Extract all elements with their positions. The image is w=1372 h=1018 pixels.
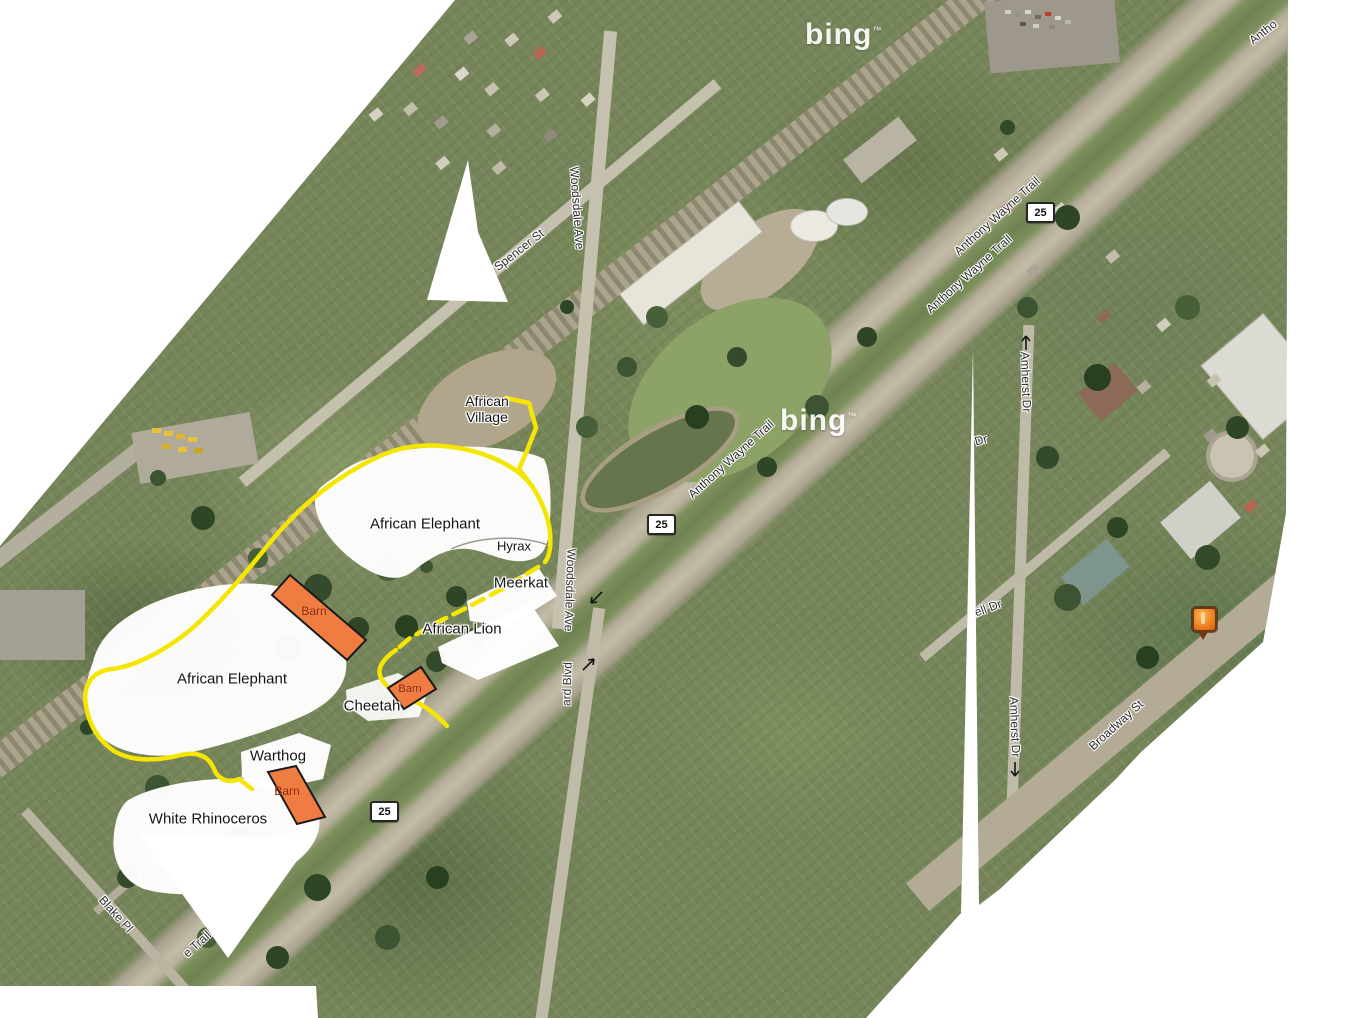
arrow-sw-icon [591, 592, 602, 603]
label-african-village: African Village [465, 393, 509, 425]
bing-watermark-top[interactable]: bing™ [805, 18, 882, 52]
pushpin-tail-icon [1197, 630, 1209, 640]
label-amherst-dr-north: Amherst Dr [1018, 351, 1034, 412]
label-woodsdale-ave-south: Woodsdale Ave [562, 548, 579, 631]
label-cheetah: Cheetah [344, 698, 401, 715]
label-warthog: Warthog [250, 748, 306, 765]
label-meerkat: Meerkat [494, 575, 548, 592]
label-white-rhinoceros: White Rhinoceros [149, 811, 267, 828]
route-number: 25 [655, 519, 667, 531]
arrow-n-icon [1022, 336, 1030, 350]
bing-watermark-middle[interactable]: bing™ [780, 404, 857, 438]
label-amherst-dr-south: Amherst Dr [1007, 696, 1023, 757]
bing-logo-text: bing [780, 404, 847, 437]
label-african-lion: African Lion [422, 621, 501, 638]
map-pushpin-marker[interactable] [1192, 607, 1214, 641]
arrow-ne-icon [583, 659, 594, 670]
label-hyrax: Hyrax [497, 539, 531, 554]
arrow-s-icon [1011, 762, 1019, 776]
trademark-symbol: ™ [847, 411, 857, 421]
label-barn-2: Barn [398, 683, 421, 695]
route-number: 25 [378, 806, 390, 818]
label-ard-blvd-partial: ard Blvd [559, 662, 575, 706]
pushpin-glyph-icon [1201, 612, 1205, 624]
label-barn-1: Barn [301, 604, 326, 618]
african-village-line2: Village [465, 409, 509, 425]
aerial-imagery-composite: bing™ bing™ 25 25 25 African Village Afr… [0, 0, 1372, 1018]
route-25-shield-middle: 25 [647, 514, 676, 535]
african-village-line1: African [465, 393, 509, 409]
route-number: 25 [1034, 207, 1046, 219]
exhibit-area-african-elephant-upper [315, 447, 551, 578]
bing-logo-text: bing [805, 18, 872, 51]
label-barn-3: Barn [274, 784, 299, 798]
route-25-shield-north: 25 [1026, 202, 1055, 223]
label-african-elephant-upper: African Elephant [370, 516, 480, 533]
one-way-arrows [583, 336, 1030, 776]
bing-maps-aerial-canvas[interactable]: bing™ bing™ 25 25 25 African Village Afr… [0, 0, 1372, 1018]
route-25-shield-south: 25 [370, 801, 399, 822]
label-african-elephant-lower: African Elephant [177, 671, 287, 688]
trademark-symbol: ™ [872, 25, 882, 35]
